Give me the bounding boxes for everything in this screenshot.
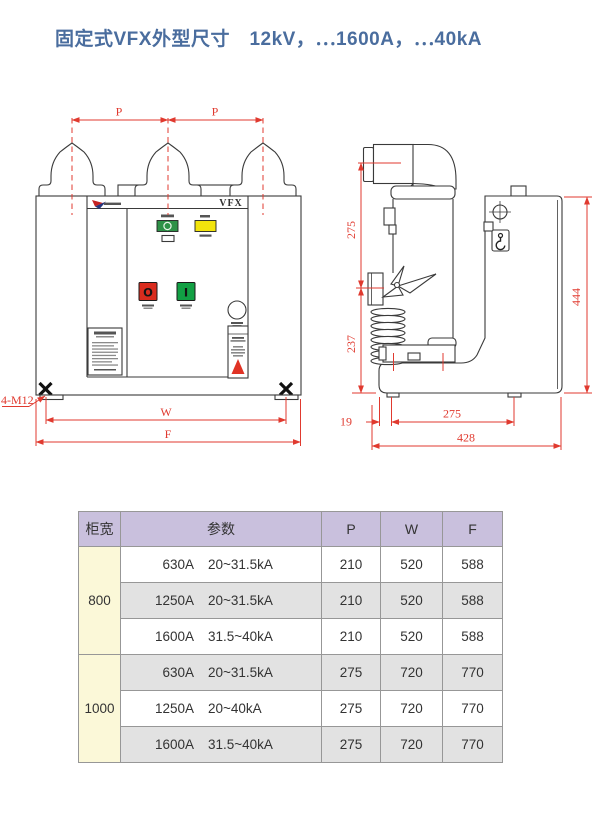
dim-w: W xyxy=(160,405,172,419)
svg-text:O: O xyxy=(143,286,153,300)
page-title: 固定式VFX外型尺寸 12kV，⋯1600A，⋯40kA xyxy=(55,24,482,51)
panel-clip xyxy=(484,222,493,231)
table-row: 1600A 31.5~40kA 275 720 770 xyxy=(79,727,503,763)
svg-text:I: I xyxy=(184,286,188,300)
table-header-row: 柜宽 参数 P W F xyxy=(79,512,503,547)
technical-drawing: VFX O I xyxy=(0,90,600,470)
param-breaking: 20~31.5kA xyxy=(208,557,300,572)
table-row: 1250A 20~40kA 275 720 770 xyxy=(79,691,503,727)
param-breaking: 20~40kA xyxy=(208,701,300,716)
param-breaking: 20~31.5kA xyxy=(208,665,300,680)
value-p: 275 xyxy=(322,655,381,691)
warning-label xyxy=(228,326,248,378)
value-p: 210 xyxy=(322,619,381,655)
value-f: 588 xyxy=(443,547,503,583)
value-f: 588 xyxy=(443,619,503,655)
dim-mounting-depth: 275 xyxy=(443,407,461,421)
side-view-drawing: 275 237 444 19 275 428 xyxy=(340,145,592,451)
table-row: 1000 630A 20~31.5kA 275 720 770 xyxy=(79,655,503,691)
table-row: 800 630A 20~31.5kA 210 520 588 xyxy=(79,547,503,583)
param-current: 1250A xyxy=(142,701,194,716)
value-p: 275 xyxy=(322,691,381,727)
param-current: 630A xyxy=(142,665,194,680)
value-w: 520 xyxy=(381,583,443,619)
param-breaking: 31.5~40kA xyxy=(208,737,300,752)
value-w: 720 xyxy=(381,691,443,727)
dim-p-right: P xyxy=(212,105,219,119)
operating-lever xyxy=(383,266,436,297)
value-w: 720 xyxy=(381,727,443,763)
foot-rear xyxy=(508,393,521,397)
param-current: 1250A xyxy=(142,593,194,608)
header-p: P xyxy=(322,512,381,547)
dimension-table: 柜宽 参数 P W F 800 630A 20~31.5kA 210 520 5… xyxy=(78,511,503,763)
dim-upper-height: 275 xyxy=(344,221,358,239)
value-w: 520 xyxy=(381,619,443,655)
dim-rear-height: 444 xyxy=(569,288,583,306)
nameplate xyxy=(88,328,122,375)
value-f: 770 xyxy=(443,655,503,691)
dim-p-left: P xyxy=(116,105,123,119)
value-f: 770 xyxy=(443,727,503,763)
dim-front-offset: 19 xyxy=(340,415,352,429)
front-view-drawing: VFX O I xyxy=(1,105,301,447)
cabinet-width-1000: 1000 xyxy=(79,655,121,763)
param-breaking: 20~31.5kA xyxy=(208,593,300,608)
dim-total-depth: 428 xyxy=(457,431,475,445)
value-p: 275 xyxy=(322,727,381,763)
dim-bolt-note: 4-M12 xyxy=(1,393,34,407)
value-p: 210 xyxy=(322,583,381,619)
value-w: 520 xyxy=(381,547,443,583)
counter-window xyxy=(162,236,174,242)
param-current: 1600A xyxy=(142,737,194,752)
param-current: 1600A xyxy=(142,629,194,644)
dim-f: F xyxy=(165,427,172,441)
value-f: 588 xyxy=(443,583,503,619)
product-label: VFX xyxy=(219,198,243,209)
header-cabinet-width: 柜宽 xyxy=(79,512,121,547)
hook-icon xyxy=(492,230,509,251)
value-p: 210 xyxy=(322,547,381,583)
param-current: 630A xyxy=(142,557,194,572)
frame-bracket xyxy=(379,196,562,393)
table-row: 1600A 31.5~40kA 210 520 588 xyxy=(79,619,503,655)
dim-lower-height: 237 xyxy=(344,335,358,353)
foot-front xyxy=(387,393,399,397)
vacuum-pole xyxy=(364,145,457,365)
header-f: F xyxy=(443,512,503,547)
value-w: 720 xyxy=(381,655,443,691)
cabinet-width-800: 800 xyxy=(79,547,121,655)
table-row: 1250A 20~31.5kA 210 520 588 xyxy=(79,583,503,619)
value-f: 770 xyxy=(443,691,503,727)
lifting-lug xyxy=(511,186,526,196)
header-w: W xyxy=(381,512,443,547)
param-breaking: 31.5~40kA xyxy=(208,629,300,644)
header-parameters: 参数 xyxy=(121,512,322,547)
